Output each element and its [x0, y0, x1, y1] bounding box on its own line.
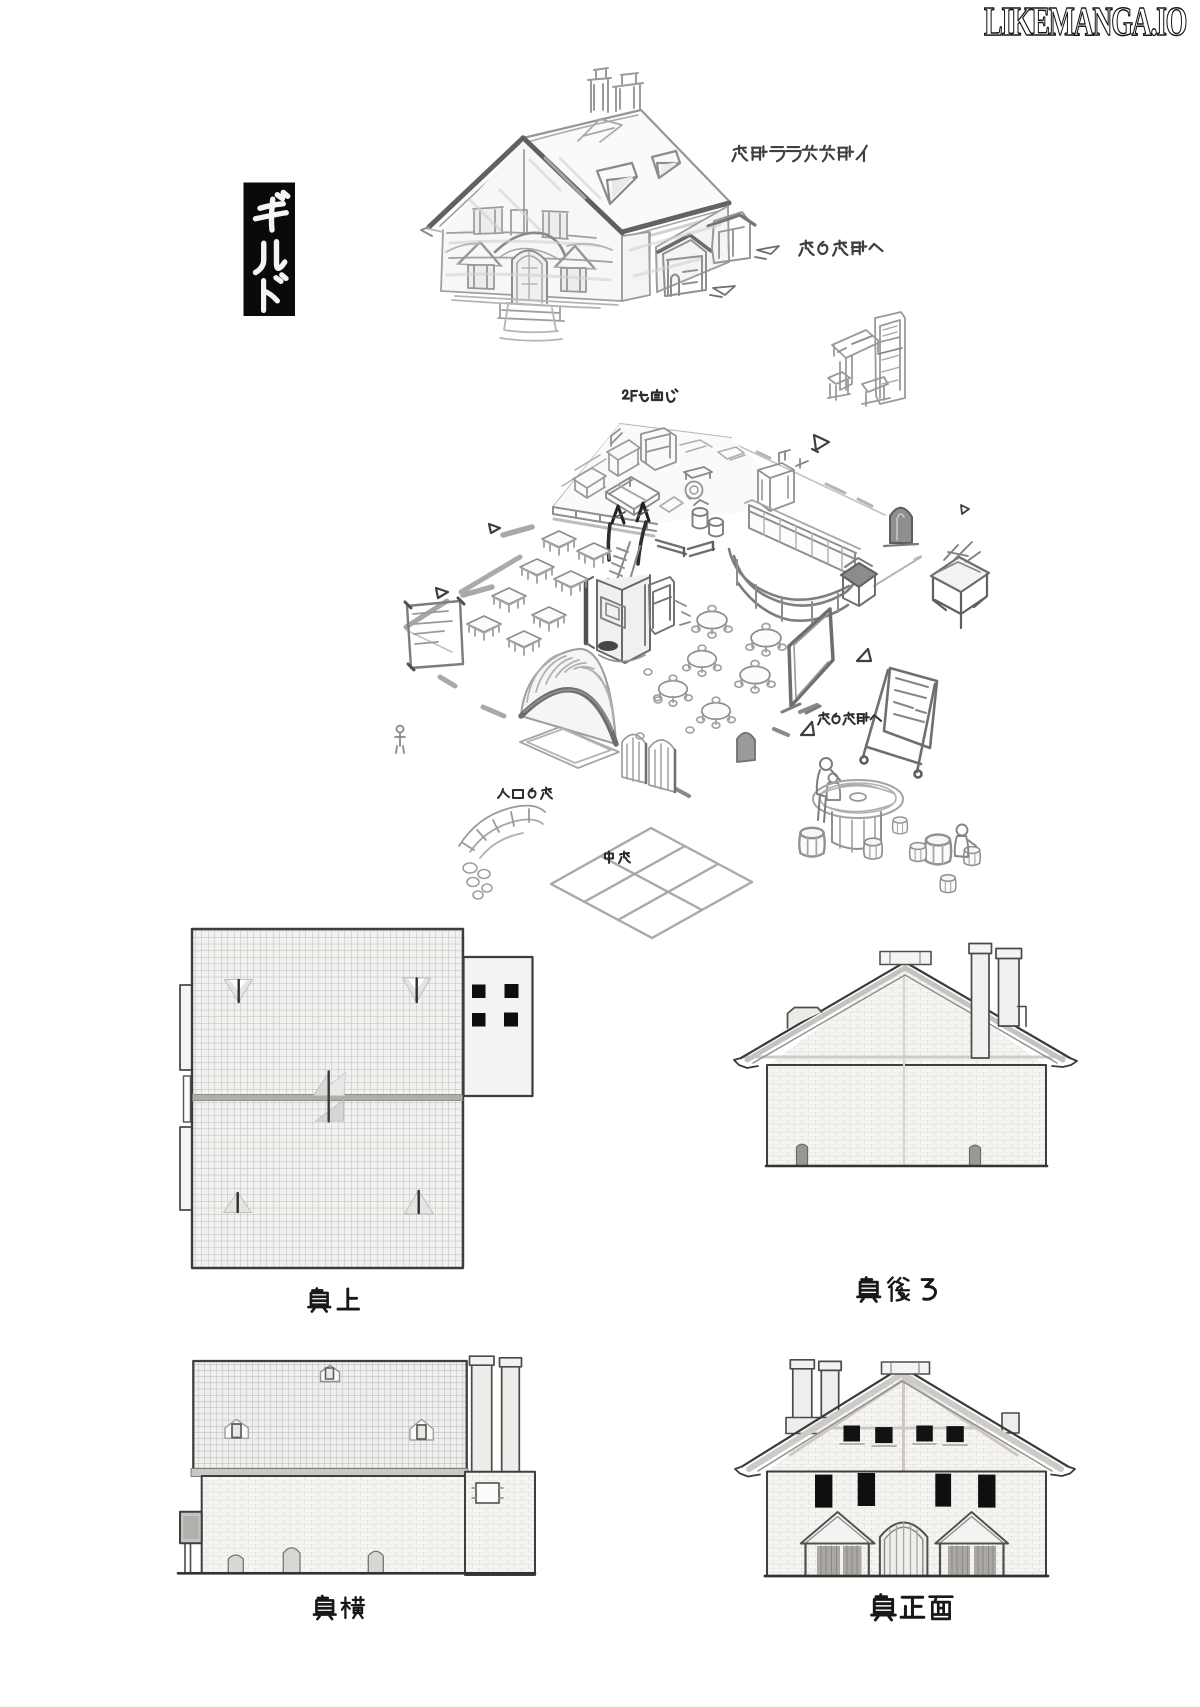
svg-text:LIKEMANGA.IO: LIKEMANGA.IO: [984, 0, 1186, 44]
